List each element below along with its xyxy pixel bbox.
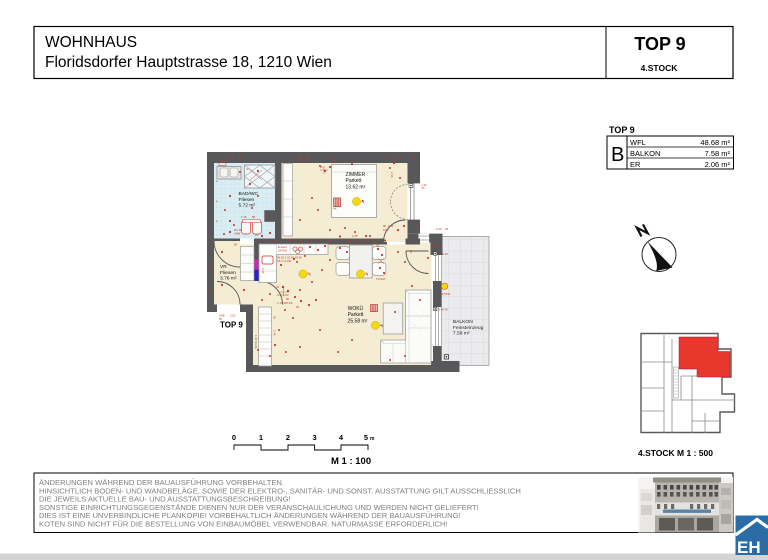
svg-text:VR: VR — [220, 264, 227, 270]
svg-text:05: 05 — [300, 240, 304, 244]
svg-text:1.05: 1.05 — [295, 154, 301, 158]
svg-text:60: 60 — [259, 239, 263, 243]
svg-text:m 2: m 2 — [207, 265, 211, 270]
svg-text:0: 0 — [232, 433, 236, 442]
svg-text:4.STOCK M 1 : 500: 4.STOCK M 1 : 500 — [638, 448, 713, 458]
svg-text:2.46 90: 2.46 90 — [439, 308, 449, 312]
svg-text:1: 1 — [259, 433, 263, 442]
svg-text:Fliesen: Fliesen — [239, 197, 255, 203]
svg-text:+BW: +BW — [234, 232, 240, 236]
svg-text:TOP 9: TOP 9 — [220, 321, 243, 330]
svg-text:55: 55 — [219, 317, 223, 321]
svg-text:3: 3 — [313, 433, 317, 442]
svg-text:2.02: 2.02 — [265, 213, 269, 219]
svg-text:2.61: 2.61 — [346, 240, 352, 244]
svg-text:2.02: 2.02 — [388, 224, 394, 228]
svg-text:1.05: 1.05 — [352, 234, 358, 238]
svg-text:■: ■ — [362, 199, 364, 203]
svg-text:1.16: 1.16 — [241, 215, 247, 219]
svg-text:●: ● — [216, 219, 218, 223]
svg-text:2.46: 2.46 — [273, 330, 277, 336]
svg-text:Floridsdorfer Hauptstrasse 18,: Floridsdorfer Hauptstrasse 18, 1210 Wien — [45, 54, 332, 71]
svg-text:1.16 JRS 05: 1.16 JRS 05 — [277, 301, 293, 305]
svg-text:SPÜLE: SPÜLE — [278, 249, 287, 253]
svg-text:48.68 m²: 48.68 m² — [700, 138, 730, 147]
svg-text:2.46 90: 2.46 90 — [439, 252, 449, 256]
svg-text:05: 05 — [296, 305, 300, 309]
svg-text:KF G S AW: KF G S AW — [277, 259, 292, 263]
svg-text:5: 5 — [364, 433, 368, 442]
svg-text:BAD/WC: BAD/WC — [239, 191, 259, 197]
svg-text:B: B — [611, 144, 624, 166]
svg-text:TOP 9: TOP 9 — [609, 125, 635, 135]
svg-text:WOKÜ: WOKÜ — [348, 305, 364, 312]
svg-text:2.02: 2.02 — [230, 314, 236, 318]
svg-text:1.97 Drehtr: 1.97 Drehtr — [254, 335, 258, 349]
svg-text:BALKON: BALKON — [630, 149, 660, 158]
svg-text:WOHNHAUS: WOHNHAUS — [45, 34, 137, 51]
svg-text:2: 2 — [286, 433, 290, 442]
svg-text:M 1 : 100: M 1 : 100 — [331, 456, 371, 467]
svg-text:3.76 m²: 3.76 m² — [220, 276, 237, 282]
svg-text:50: 50 — [398, 155, 402, 159]
svg-text:4: 4 — [339, 433, 344, 442]
svg-text:60: 60 — [305, 154, 309, 158]
svg-text:90 2.46: 90 2.46 — [432, 244, 441, 248]
svg-text:4.STOCK: 4.STOCK — [641, 63, 679, 73]
svg-text:KOTEN SIND NICHT FÜR DIE BESTE: KOTEN SIND NICHT FÜR DIE BESTELLUNG VON … — [39, 520, 448, 529]
svg-text:2.46: 2.46 — [436, 227, 442, 231]
svg-text:Parkett: Parkett — [346, 178, 362, 184]
svg-text:TV/SAT: TV/SAT — [376, 277, 386, 281]
svg-text:05: 05 — [266, 239, 270, 243]
svg-text:1.40: 1.40 — [388, 155, 394, 159]
svg-text:EH: EH — [737, 538, 761, 557]
svg-text:Feinsteinzeug: Feinsteinzeug — [453, 325, 484, 331]
svg-text:ER: ER — [630, 160, 641, 169]
svg-text:WFL: WFL — [630, 138, 646, 147]
svg-text:B5.05: B5.05 — [219, 158, 227, 162]
svg-text:AP IP44: AP IP44 — [440, 292, 451, 296]
svg-text:Parkett: Parkett — [348, 312, 364, 318]
svg-text:60: 60 — [273, 316, 277, 320]
svg-text:m: m — [370, 436, 375, 442]
svg-text:7.58 m²: 7.58 m² — [705, 149, 731, 158]
svg-text:7.58 m²: 7.58 m² — [453, 331, 470, 337]
svg-text:1.16: 1.16 — [207, 290, 211, 296]
svg-text:13.62 m²: 13.62 m² — [346, 184, 366, 190]
svg-text:●: ● — [216, 179, 218, 183]
svg-text:1.40: 1.40 — [272, 239, 278, 243]
svg-text:2.40: 2.40 — [261, 268, 265, 274]
svg-text:TOP 9: TOP 9 — [634, 34, 685, 54]
svg-text:HK: HK — [333, 207, 337, 211]
svg-text:80: 80 — [234, 243, 238, 247]
svg-text:05: 05 — [356, 240, 360, 244]
svg-text:2.06 m²: 2.06 m² — [705, 160, 731, 169]
svg-text:●: ● — [216, 199, 218, 203]
svg-text:58: 58 — [252, 215, 256, 219]
svg-text:80: 80 — [409, 250, 413, 254]
svg-text:BALKON: BALKON — [453, 319, 473, 325]
svg-text:2.46: 2.46 — [390, 172, 394, 178]
svg-text:05: 05 — [317, 240, 321, 244]
svg-text:1.26: 1.26 — [307, 240, 313, 244]
svg-text:1.80: 1.80 — [363, 240, 369, 244]
svg-text:Fliesen: Fliesen — [220, 270, 236, 276]
svg-text:ZIMMER: ZIMMER — [346, 172, 366, 178]
svg-text:0.80: 0.80 — [383, 228, 389, 232]
svg-text:25.58 m²: 25.58 m² — [348, 318, 368, 324]
svg-text:05: 05 — [445, 227, 449, 231]
